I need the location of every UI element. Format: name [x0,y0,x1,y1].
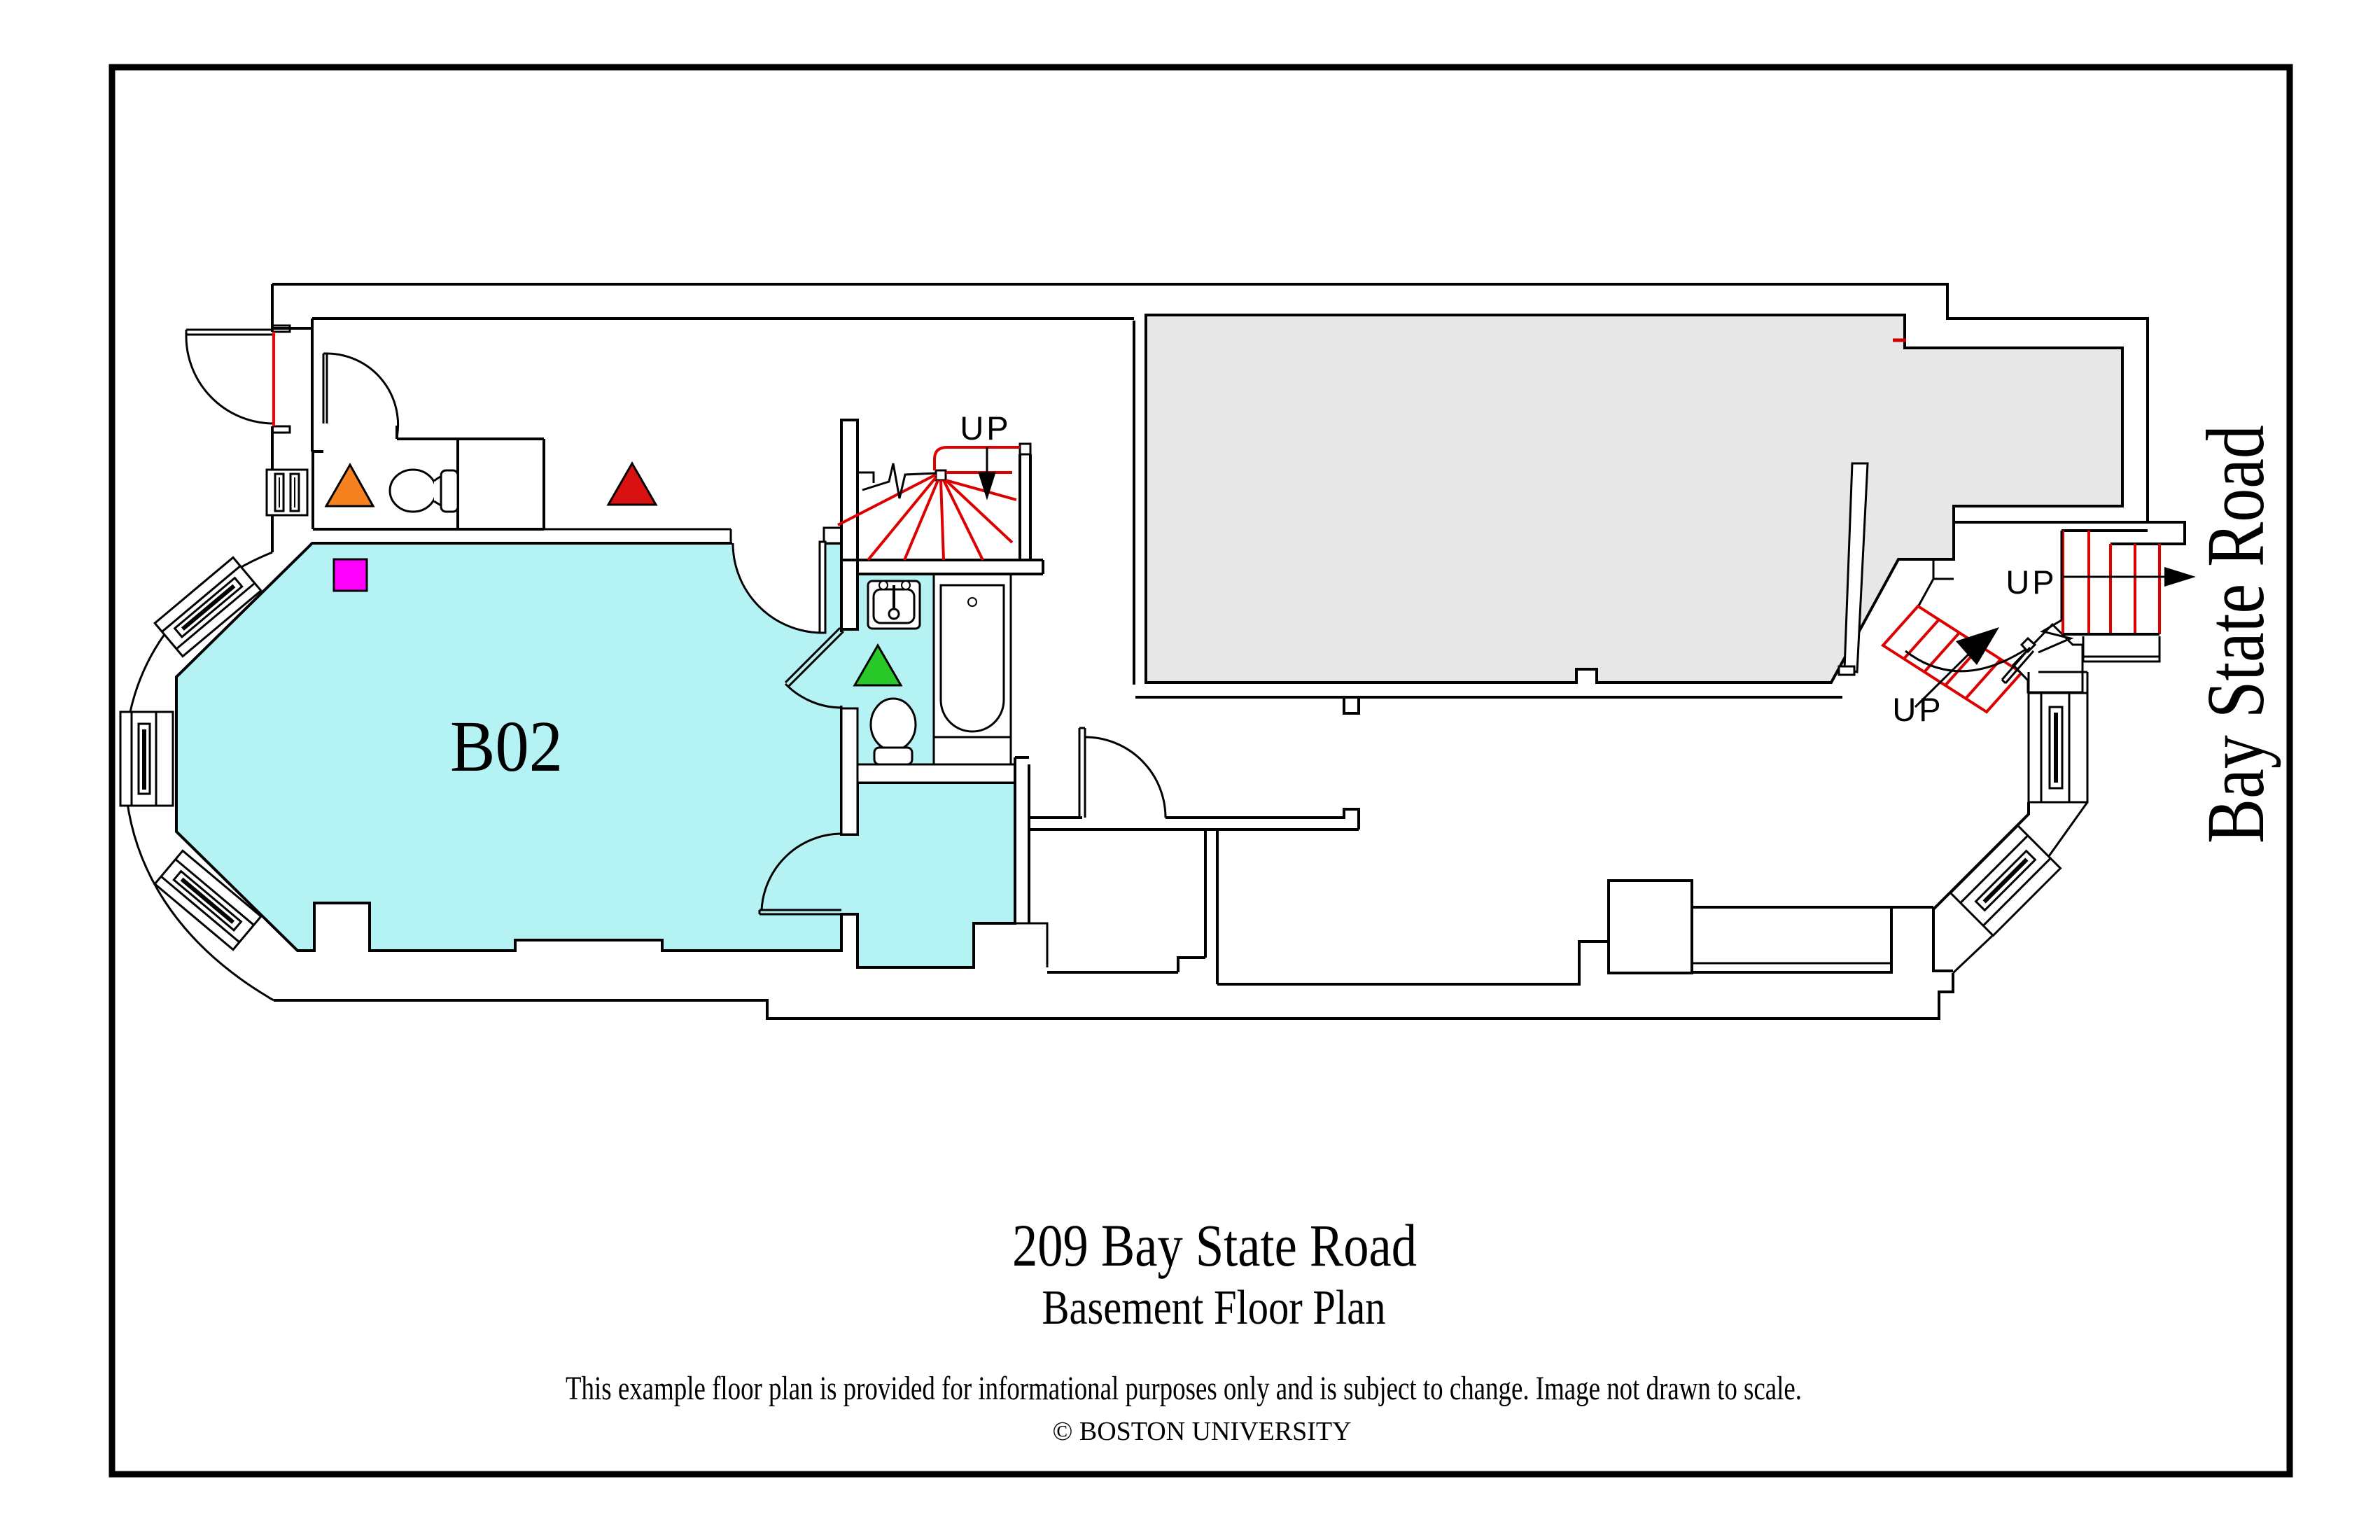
svg-text:Bay State Road: Bay State Road [2190,425,2281,843]
svg-text:UP: UP [1892,691,1943,728]
svg-text:209 Bay State Road: 209 Bay State Road [1012,1212,1417,1279]
svg-text:B02: B02 [450,706,563,787]
svg-text:Basement Floor Plan: Basement Floor Plan [1042,1281,1386,1335]
svg-text:UP: UP [2005,563,2057,601]
svg-text:This example floor plan is pro: This example floor plan is provided for … [566,1370,1802,1407]
svg-text:© BOSTON UNIVERSITY: © BOSTON UNIVERSITY [1053,1417,1352,1446]
svg-text:UP: UP [960,409,1011,447]
